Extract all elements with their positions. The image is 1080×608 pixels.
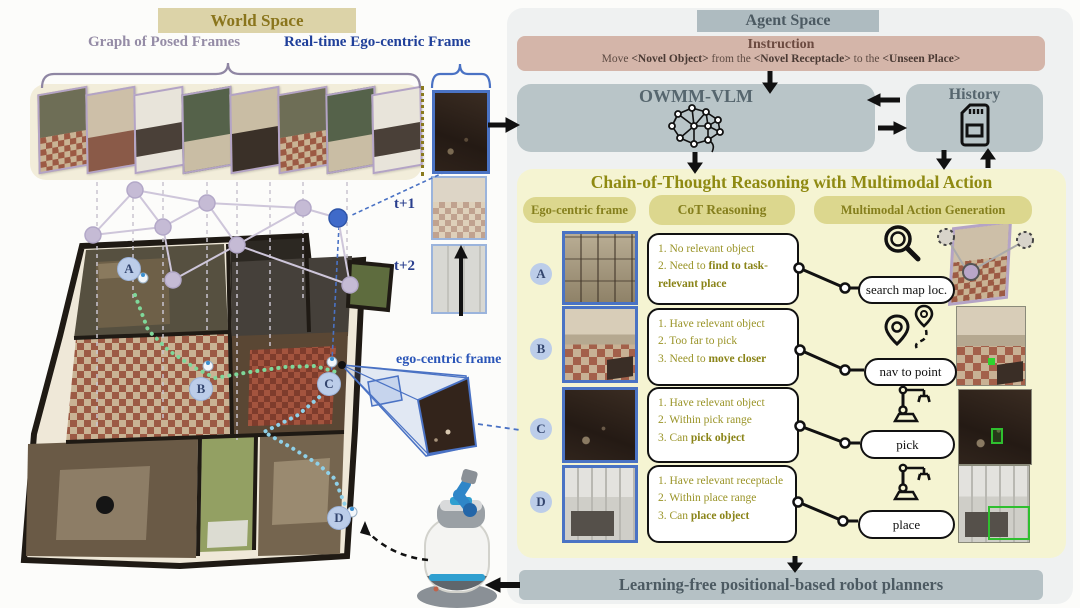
camera-frustum [338, 361, 476, 456]
posed-frame [37, 86, 88, 175]
posed-frame [229, 86, 280, 175]
cot-line: 1. Have relevant object [658, 395, 790, 412]
cot-line: 1. Have relevant object [658, 316, 790, 333]
place-target-marker [988, 506, 1030, 540]
pick-target-marker [991, 428, 1003, 444]
row-marker-d: D [530, 491, 552, 513]
cot-line: 2. Within place range [658, 490, 788, 507]
graph-of-posed-frames-label: Graph of Posed Frames [88, 34, 240, 51]
egocentric-frame-annotation: ego-centric frame [396, 352, 501, 368]
column-header-ego-frame: Ego-centric frame [523, 197, 636, 223]
column-header-cot-reasoning: CoT Reasoning [649, 195, 795, 225]
cot-line: 1. No relevant object [658, 241, 790, 258]
cot-line: 2. Too far to pick [658, 333, 790, 350]
cot-line: 3. Need to move closer [658, 351, 790, 368]
realtime-ego-frame-label: Real-time Ego-centric Frame [284, 34, 471, 51]
instruction-box: Instruction Move <Novel Object> from the… [517, 36, 1045, 71]
action-image-nav [956, 306, 1026, 386]
ego-frame-image-a [562, 231, 638, 305]
cot-line: 1. Have relevant receptacle [658, 473, 788, 490]
posed-frame [181, 86, 232, 175]
ego-frame-image-b [562, 306, 638, 383]
t-plus-2-label: t+2 [394, 258, 415, 275]
cot-line: 2. Need to find to task-relevant place [658, 258, 790, 293]
cot-line: 3. Can place object [658, 508, 788, 525]
brain-network-icon [664, 104, 728, 154]
cot-line: 3. Can pick object [658, 430, 790, 447]
action-pill-place: place [858, 510, 955, 539]
ego-frame-image-c [562, 387, 638, 463]
cot-box-c: 1. Have relevant object 2. Within pick r… [647, 387, 799, 463]
floorplan-marker-a: A [117, 257, 141, 281]
cot-line: 2. Within pick range [658, 412, 790, 429]
robot-figure [417, 468, 497, 608]
planner-bar: Learning-free positional-based robot pla… [519, 570, 1043, 600]
agent-space-header: Agent Space [697, 10, 879, 32]
posed-frame [277, 86, 328, 175]
cot-title: Chain-of-Thought Reasoning with Multimod… [517, 172, 1066, 193]
t-plus-1-label: t+1 [394, 196, 415, 213]
posed-frame [85, 86, 136, 175]
robot-arm-icon [893, 461, 937, 503]
floorplan-marker-b: B [189, 377, 213, 401]
posed-frame [133, 86, 184, 175]
row-marker-b: B [530, 338, 552, 360]
posed-frame [371, 86, 422, 175]
posed-frame [325, 86, 376, 175]
cot-box-d: 1. Have relevant receptacle 2. Within pl… [647, 465, 797, 543]
active-pose-node [329, 209, 347, 227]
instruction-text: Move <Novel Object> from the <Novel Rece… [517, 53, 1045, 65]
column-header-action-generation: Multimodal Action Generation [814, 196, 1032, 224]
instruction-title: Instruction [517, 37, 1045, 53]
cot-box-b: 1. Have relevant object 2. Too far to pi… [647, 308, 799, 386]
magnifier-icon [878, 222, 924, 267]
nav-target-marker [988, 358, 995, 365]
waypoint-icon [882, 302, 936, 352]
action-pill-nav: nav to point [864, 358, 957, 386]
t-plus-2-frame [431, 244, 487, 314]
action-pill-search: search map loc. [858, 276, 955, 304]
row-marker-a: A [530, 263, 552, 285]
world-space-header: World Space [158, 8, 356, 33]
floorplan-marker-c: C [317, 372, 341, 396]
cot-box-a: 1. No relevant object 2. Need to find to… [647, 233, 799, 305]
nav-path-green [135, 295, 336, 378]
strip-divider [421, 86, 424, 176]
action-image-pick [958, 389, 1032, 465]
t-plus-1-frame [431, 176, 487, 240]
ego-current-frame [432, 90, 490, 174]
floorplan-marker-d: D [327, 506, 351, 530]
ego-frame-image-d [562, 465, 638, 543]
action-pill-pick: pick [860, 430, 955, 459]
nav-path-blue [264, 388, 347, 510]
sd-card-icon [958, 102, 992, 148]
row-marker-c: C [530, 418, 552, 440]
robot-arm-icon [893, 383, 937, 425]
action-image-map-search [948, 220, 1012, 306]
